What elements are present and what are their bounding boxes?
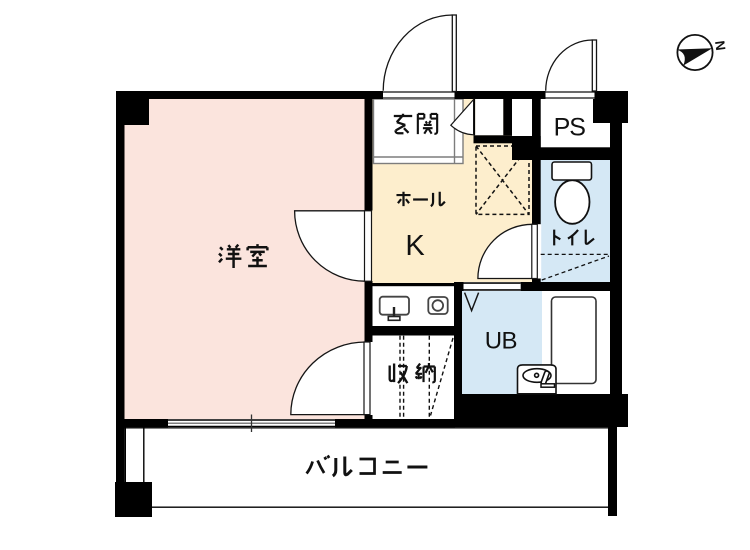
svg-text:N: N [712, 40, 728, 52]
svg-text:PS: PS [554, 113, 586, 141]
svg-text:K: K [405, 230, 425, 262]
svg-text:UB: UB [485, 328, 517, 355]
